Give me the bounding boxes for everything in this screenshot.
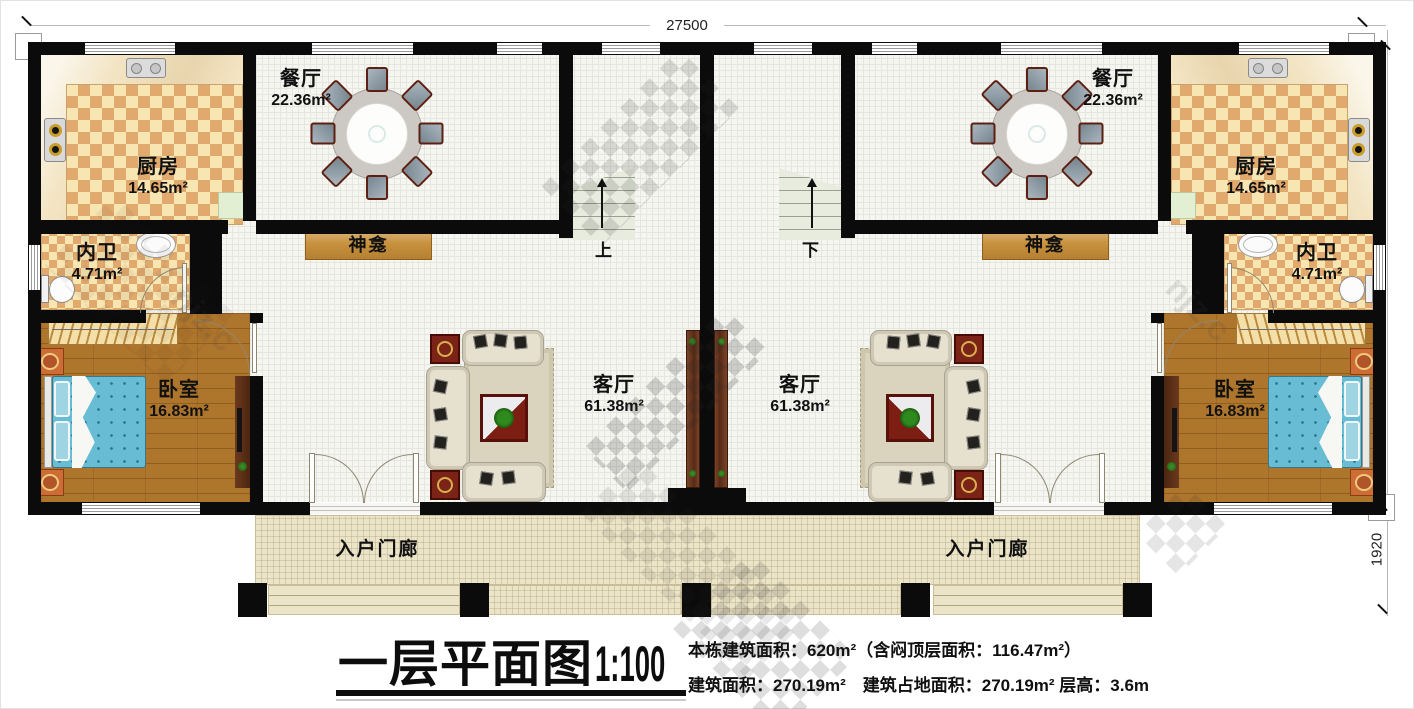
wall-pier (668, 488, 707, 515)
kitchen-mat (1169, 192, 1196, 219)
door-threshold (310, 503, 420, 514)
window (1239, 43, 1329, 54)
hall-cabinet (714, 330, 728, 488)
sofa-pillow (501, 470, 515, 484)
sofa-pillow (433, 407, 448, 422)
wall-segment (28, 310, 146, 323)
bed-pillow (1344, 421, 1360, 461)
plan-title: 一层平面图1:100 (338, 624, 723, 696)
sofa-pillow (513, 335, 527, 349)
sofa-pillow (433, 379, 448, 394)
dimension-line-right (1387, 30, 1388, 616)
toilet-icon (1365, 275, 1373, 303)
sofa-pillow (906, 333, 921, 348)
wall-segment (841, 220, 1158, 234)
plant-icon (689, 470, 696, 477)
shrine-table: 神龛 (305, 230, 432, 260)
bed-headboard (44, 376, 52, 468)
window (1214, 503, 1332, 514)
sofa-pillow (898, 470, 912, 484)
window (29, 245, 40, 290)
dimension-label-width: 27500 (650, 17, 724, 34)
window (754, 43, 812, 54)
bathroom-label: 内卫4.71m² (50, 242, 144, 284)
unit-right: 神龛 (707, 42, 1386, 515)
porch-column (1123, 583, 1152, 617)
hall-cabinet (686, 330, 700, 488)
unit-left: 神龛 (28, 42, 707, 515)
dining-table-hub (1028, 125, 1046, 143)
sofa-pillow (966, 407, 981, 422)
kitchen-tile (66, 84, 243, 225)
dining-chair (419, 123, 444, 145)
side-table (430, 334, 460, 364)
sofa-pillow (473, 334, 488, 349)
shrine-label: 神龛 (349, 231, 389, 259)
wall-segment (700, 42, 707, 515)
dining-chair (971, 123, 996, 145)
door-leaf (182, 263, 187, 313)
entry-door-leaf (995, 453, 1001, 503)
wall-segment (1151, 376, 1164, 502)
sofa-pillow (966, 435, 980, 449)
dining-label: 餐厅22.36m² (246, 68, 356, 110)
door-leaf (1227, 263, 1232, 313)
wall-segment (707, 42, 714, 515)
window (1374, 245, 1385, 290)
wall-segment (1268, 310, 1386, 323)
porch-column (238, 583, 267, 617)
dimension-label-height-porch: 1920 (1369, 510, 1386, 590)
window (85, 43, 175, 54)
bed-pillow (54, 421, 70, 461)
porch-slab-lower (711, 585, 901, 615)
plant-icon (689, 338, 696, 345)
dining-table-hub (368, 125, 386, 143)
sofa-pillow (966, 379, 981, 394)
plant-icon (718, 338, 725, 345)
wall-segment (1151, 313, 1164, 323)
dining-label: 餐厅22.36m² (1058, 68, 1168, 110)
title-underline-shadow (336, 699, 686, 701)
window (1001, 43, 1102, 54)
bathroom-label: 内卫4.71m² (1270, 242, 1364, 284)
window (872, 43, 917, 54)
sofa-pillow (493, 333, 508, 348)
porch-slab-lower (488, 585, 682, 615)
window (602, 43, 660, 54)
toilet-icon (41, 275, 49, 303)
plant-icon (494, 408, 514, 428)
door-threshold (994, 503, 1104, 514)
plan-scale: 1:100 (595, 635, 665, 693)
sofa-pillow (886, 335, 900, 349)
porch-column (901, 583, 930, 617)
bedroom-label: 卧室16.83m² (124, 379, 234, 421)
title-underline (336, 690, 686, 696)
living-label: 客厅61.38m² (558, 374, 670, 416)
bed-pillow (54, 381, 70, 417)
door-leaf (1157, 323, 1162, 373)
shrine-table: 神龛 (982, 230, 1109, 260)
tv-icon (1172, 408, 1177, 452)
kitchen-label: 厨房14.65m² (1201, 156, 1311, 198)
stair-arrow-icon (811, 182, 813, 228)
plant-icon (900, 408, 920, 428)
sofa-pillow (926, 334, 941, 349)
porch-steps-right (933, 585, 1123, 615)
kitchen-mat (218, 192, 245, 219)
dining-chair (1079, 123, 1104, 145)
wall-segment (250, 313, 263, 323)
dining-chair (311, 123, 336, 145)
porch-label-right: 入户门廊 (905, 534, 1070, 561)
porch-steps-left (268, 585, 460, 615)
shrine-label: 神龛 (1026, 231, 1066, 259)
wall-segment (250, 376, 263, 502)
coffee-table (886, 394, 934, 442)
info-line-1: 本栋建筑面积：620m²（含闷顶层面积：116.47m²） (688, 636, 1081, 661)
sofa-pillow (920, 471, 935, 486)
wall-segment (256, 220, 573, 234)
window (497, 43, 542, 54)
side-table (430, 470, 460, 500)
stair-direction-label: 上 (572, 241, 635, 261)
floor-plan-canvas: 27500 9500 1920 入户门廊 入户门廊 神龛 (0, 0, 1414, 709)
door-leaf (252, 323, 257, 373)
wall-segment (420, 502, 707, 515)
dining-chair (366, 67, 388, 92)
entry-door-leaf (413, 453, 419, 503)
info-line-2: 建筑面积：270.19m² 建筑占地面积：270.19m² 层高：3.6m (688, 671, 1149, 696)
wall-segment (190, 228, 222, 314)
wall-segment (841, 55, 855, 238)
side-table (954, 470, 984, 500)
dimension-tick-icon (21, 16, 32, 27)
plant-icon (1167, 462, 1176, 471)
porch-column (460, 583, 489, 617)
stair-arrow-icon (601, 182, 603, 228)
side-table (954, 334, 984, 364)
bed-headboard (1362, 376, 1370, 468)
window (312, 43, 413, 54)
dining-chair (366, 175, 388, 200)
cooktop-icon (1348, 118, 1370, 162)
dining-chair (1026, 67, 1048, 92)
sofa-pillow (433, 435, 447, 449)
kitchen-label: 厨房14.65m² (103, 156, 213, 198)
plan-title-text: 一层平面图 (338, 636, 593, 692)
stair-direction-label: 下 (779, 241, 842, 261)
porch-label-left: 入户门廊 (295, 534, 460, 561)
living-label: 客厅61.38m² (744, 374, 856, 416)
wall-pier (707, 488, 746, 515)
sofa-pillow (479, 471, 494, 486)
coffee-table (480, 394, 528, 442)
plant-icon (238, 462, 247, 471)
entry-door-leaf (1099, 453, 1105, 503)
kitchen-sink-icon (126, 58, 166, 78)
bed-pillow (1344, 381, 1360, 417)
tv-icon (237, 408, 242, 452)
kitchen-sink-icon (1248, 58, 1288, 78)
bedroom-label: 卧室16.83m² (1180, 379, 1290, 421)
wall-segment (707, 502, 994, 515)
plant-icon (718, 470, 725, 477)
wall-segment (559, 55, 573, 238)
porch-column (682, 583, 711, 617)
window (82, 503, 200, 514)
dining-chair (1026, 175, 1048, 200)
cooktop-icon (44, 118, 66, 162)
kitchen-tile (1171, 84, 1348, 225)
wall-segment (1192, 228, 1224, 314)
